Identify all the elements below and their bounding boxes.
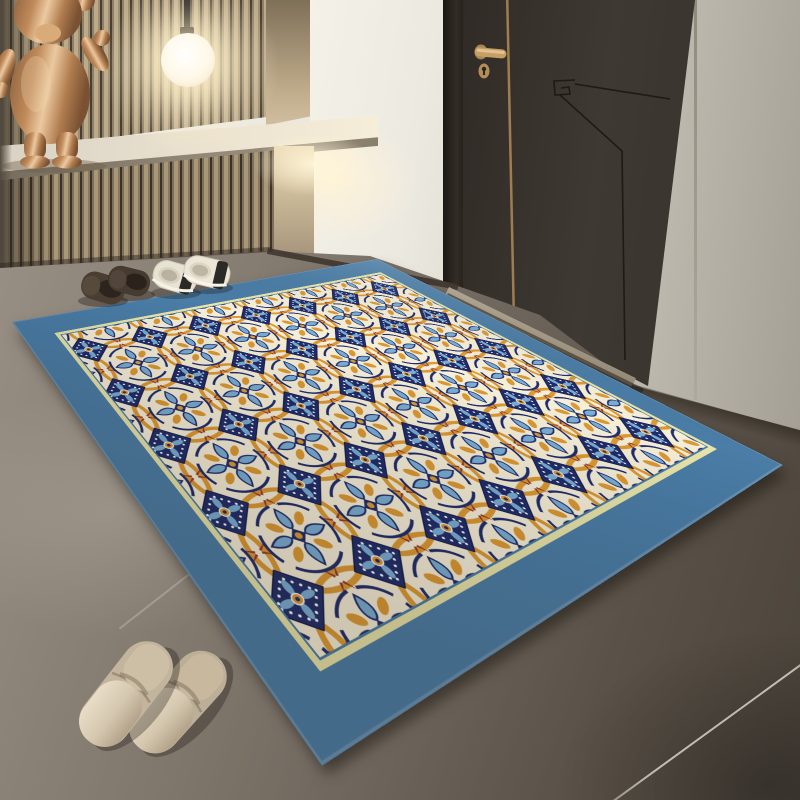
door-frame [443, 0, 465, 312]
lamp-globe [161, 33, 215, 87]
grout-line [548, 601, 800, 800]
bear-sculpture [0, 0, 126, 174]
lamp-rod [184, 0, 190, 30]
wall-corner-shadow [694, 0, 697, 400]
entryway-scene [0, 0, 800, 800]
slipper-pair [28, 598, 258, 783]
shoe-pairs [60, 243, 245, 313]
